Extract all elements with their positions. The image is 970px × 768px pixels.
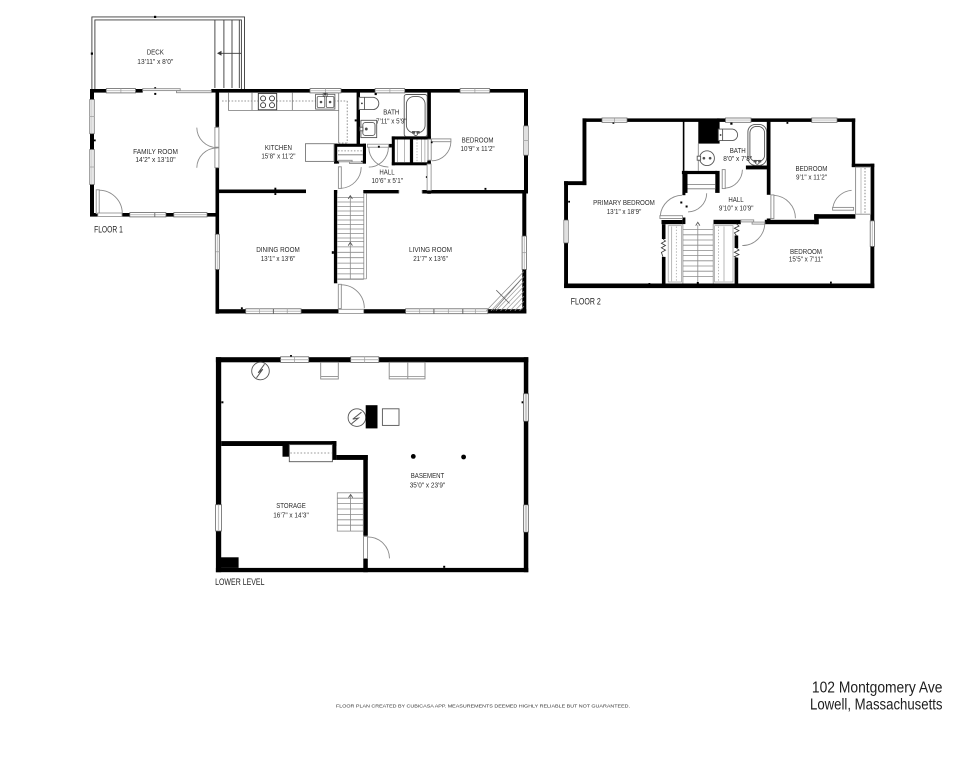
svg-text:BATH: BATH xyxy=(383,110,399,117)
svg-text:BEDROOM: BEDROOM xyxy=(790,249,822,256)
svg-text:13’1" x 13’6": 13’1" x 13’6" xyxy=(261,256,296,263)
svg-text:7’11" x 5’9": 7’11" x 5’9" xyxy=(376,118,407,125)
svg-text:BEDROOM: BEDROOM xyxy=(796,166,828,173)
svg-text:FLOOR 1: FLOOR 1 xyxy=(94,225,123,235)
svg-text:35’0" x 23’9": 35’0" x 23’9" xyxy=(410,482,446,489)
svg-text:DECK: DECK xyxy=(147,50,164,57)
svg-text:16’7" x 14’3": 16’7" x 14’3" xyxy=(273,513,309,520)
svg-text:LIVING ROOM: LIVING ROOM xyxy=(409,247,452,254)
svg-text:KITCHEN: KITCHEN xyxy=(265,145,292,152)
svg-text:14’2" x 13’10": 14’2" x 13’10" xyxy=(135,157,176,164)
svg-text:10’9" x 11’2": 10’9" x 11’2" xyxy=(461,146,496,153)
svg-text:13’11" x 8’0": 13’11" x 8’0" xyxy=(137,59,173,66)
svg-text:10’6" x 5’1": 10’6" x 5’1" xyxy=(372,178,404,185)
svg-text:9’1" x 11’2": 9’1" x 11’2" xyxy=(796,175,827,182)
svg-text:HALL: HALL xyxy=(728,197,743,204)
svg-text:FLOOR 2: FLOOR 2 xyxy=(571,297,601,307)
svg-text:15’8" x 11’2": 15’8" x 11’2" xyxy=(261,154,296,161)
svg-text:STORAGE: STORAGE xyxy=(276,503,306,510)
svg-text:BATH: BATH xyxy=(730,148,746,155)
svg-text:Lowell, Massachusetts: Lowell, Massachusetts xyxy=(810,697,943,714)
svg-text:8’0" x 7’8": 8’0" x 7’8" xyxy=(723,156,752,163)
svg-text:PRIMARY BEDROOM: PRIMARY BEDROOM xyxy=(593,200,655,207)
svg-text:13’1" x 18’9": 13’1" x 18’9" xyxy=(607,209,642,216)
svg-text:BASEMENT: BASEMENT xyxy=(411,473,445,480)
svg-text:DINING ROOM: DINING ROOM xyxy=(256,247,300,254)
svg-text:FAMILY ROOM: FAMILY ROOM xyxy=(133,149,178,156)
svg-text:LOWER LEVEL: LOWER LEVEL xyxy=(215,577,264,587)
svg-text:102 Montgomery Ave: 102 Montgomery Ave xyxy=(812,679,943,696)
svg-text:21’7" x 13’6": 21’7" x 13’6" xyxy=(413,256,448,263)
svg-text:HALL: HALL xyxy=(379,170,394,177)
svg-text:9’10" x 10’9": 9’10" x 10’9" xyxy=(719,206,754,213)
svg-text:15’5" x 7’11": 15’5" x 7’11" xyxy=(789,257,824,264)
svg-text:FLOOR PLAN CREATED BY CUBICASA: FLOOR PLAN CREATED BY CUBICASA APP. MEAS… xyxy=(336,703,630,709)
svg-text:BEDROOM: BEDROOM xyxy=(462,137,494,144)
